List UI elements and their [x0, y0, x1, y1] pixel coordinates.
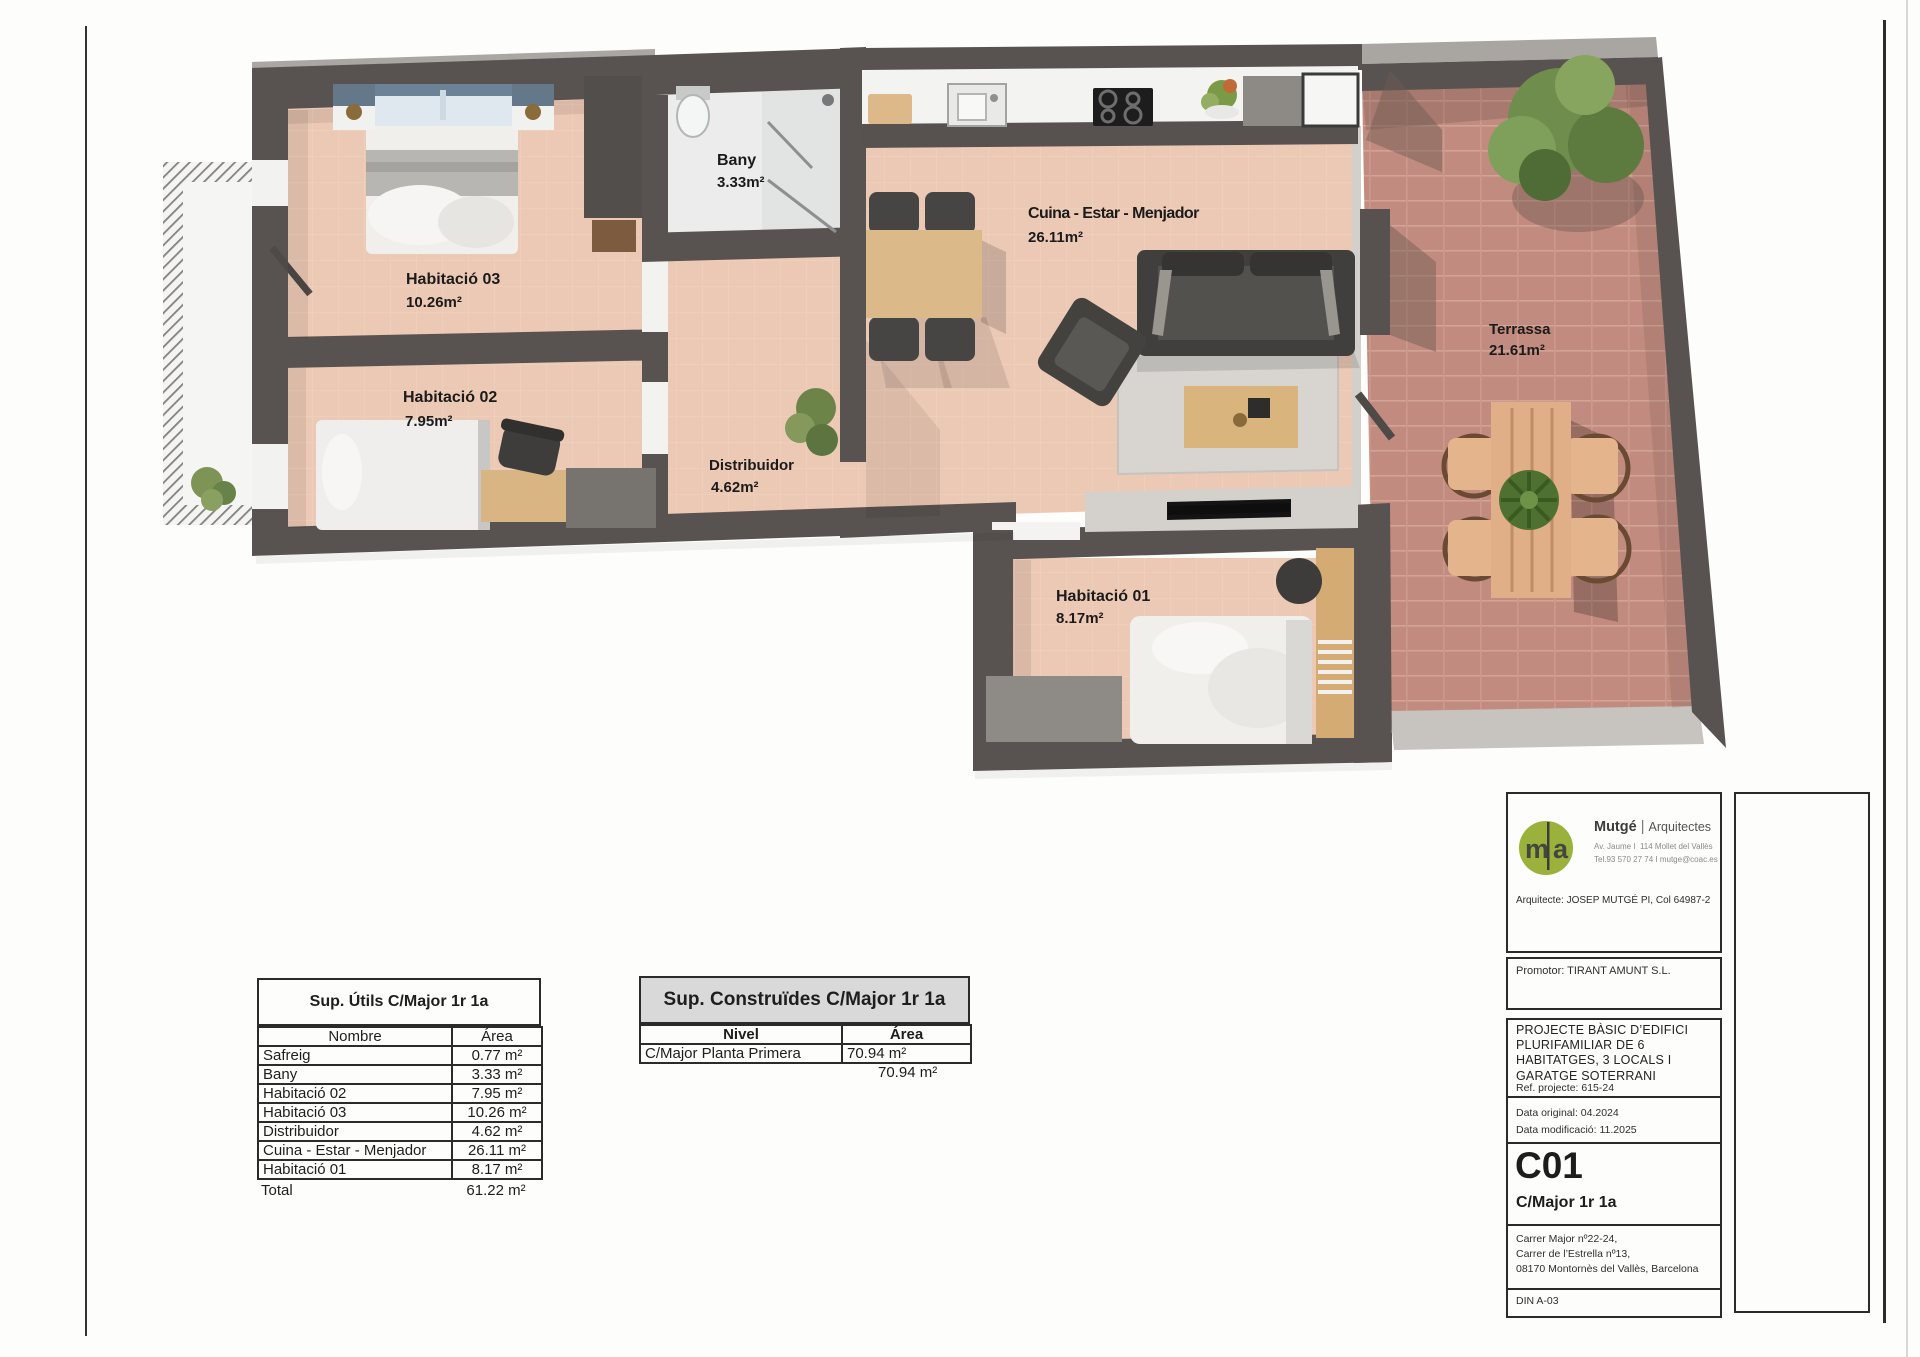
svg-text:4.62m²: 4.62m²: [711, 479, 759, 496]
svg-text:Habitació 01: Habitació 01: [1056, 588, 1150, 605]
svg-text:21.61m²: 21.61m²: [1489, 342, 1545, 359]
svg-text:8.17m²: 8.17m²: [1056, 610, 1104, 627]
svg-text:7.95m²: 7.95m²: [405, 413, 453, 430]
svg-text:Distribuidor: Distribuidor: [709, 457, 794, 474]
svg-text:m: m: [1525, 834, 1549, 864]
svg-text:Terrassa: Terrassa: [1489, 321, 1551, 338]
svg-text:26.11m²: 26.11m²: [1028, 229, 1083, 246]
svg-text:3.33m²: 3.33m²: [717, 174, 765, 191]
svg-text:Cuina - Estar - Menjador: Cuina - Estar - Menjador: [1028, 205, 1199, 222]
svg-text:Habitació 02: Habitació 02: [403, 389, 497, 406]
svg-text:Bany: Bany: [717, 152, 756, 169]
svg-text:10.26m²: 10.26m²: [406, 294, 462, 311]
svg-text:a: a: [1553, 834, 1569, 864]
svg-text:Habitació 03: Habitació 03: [406, 271, 500, 288]
